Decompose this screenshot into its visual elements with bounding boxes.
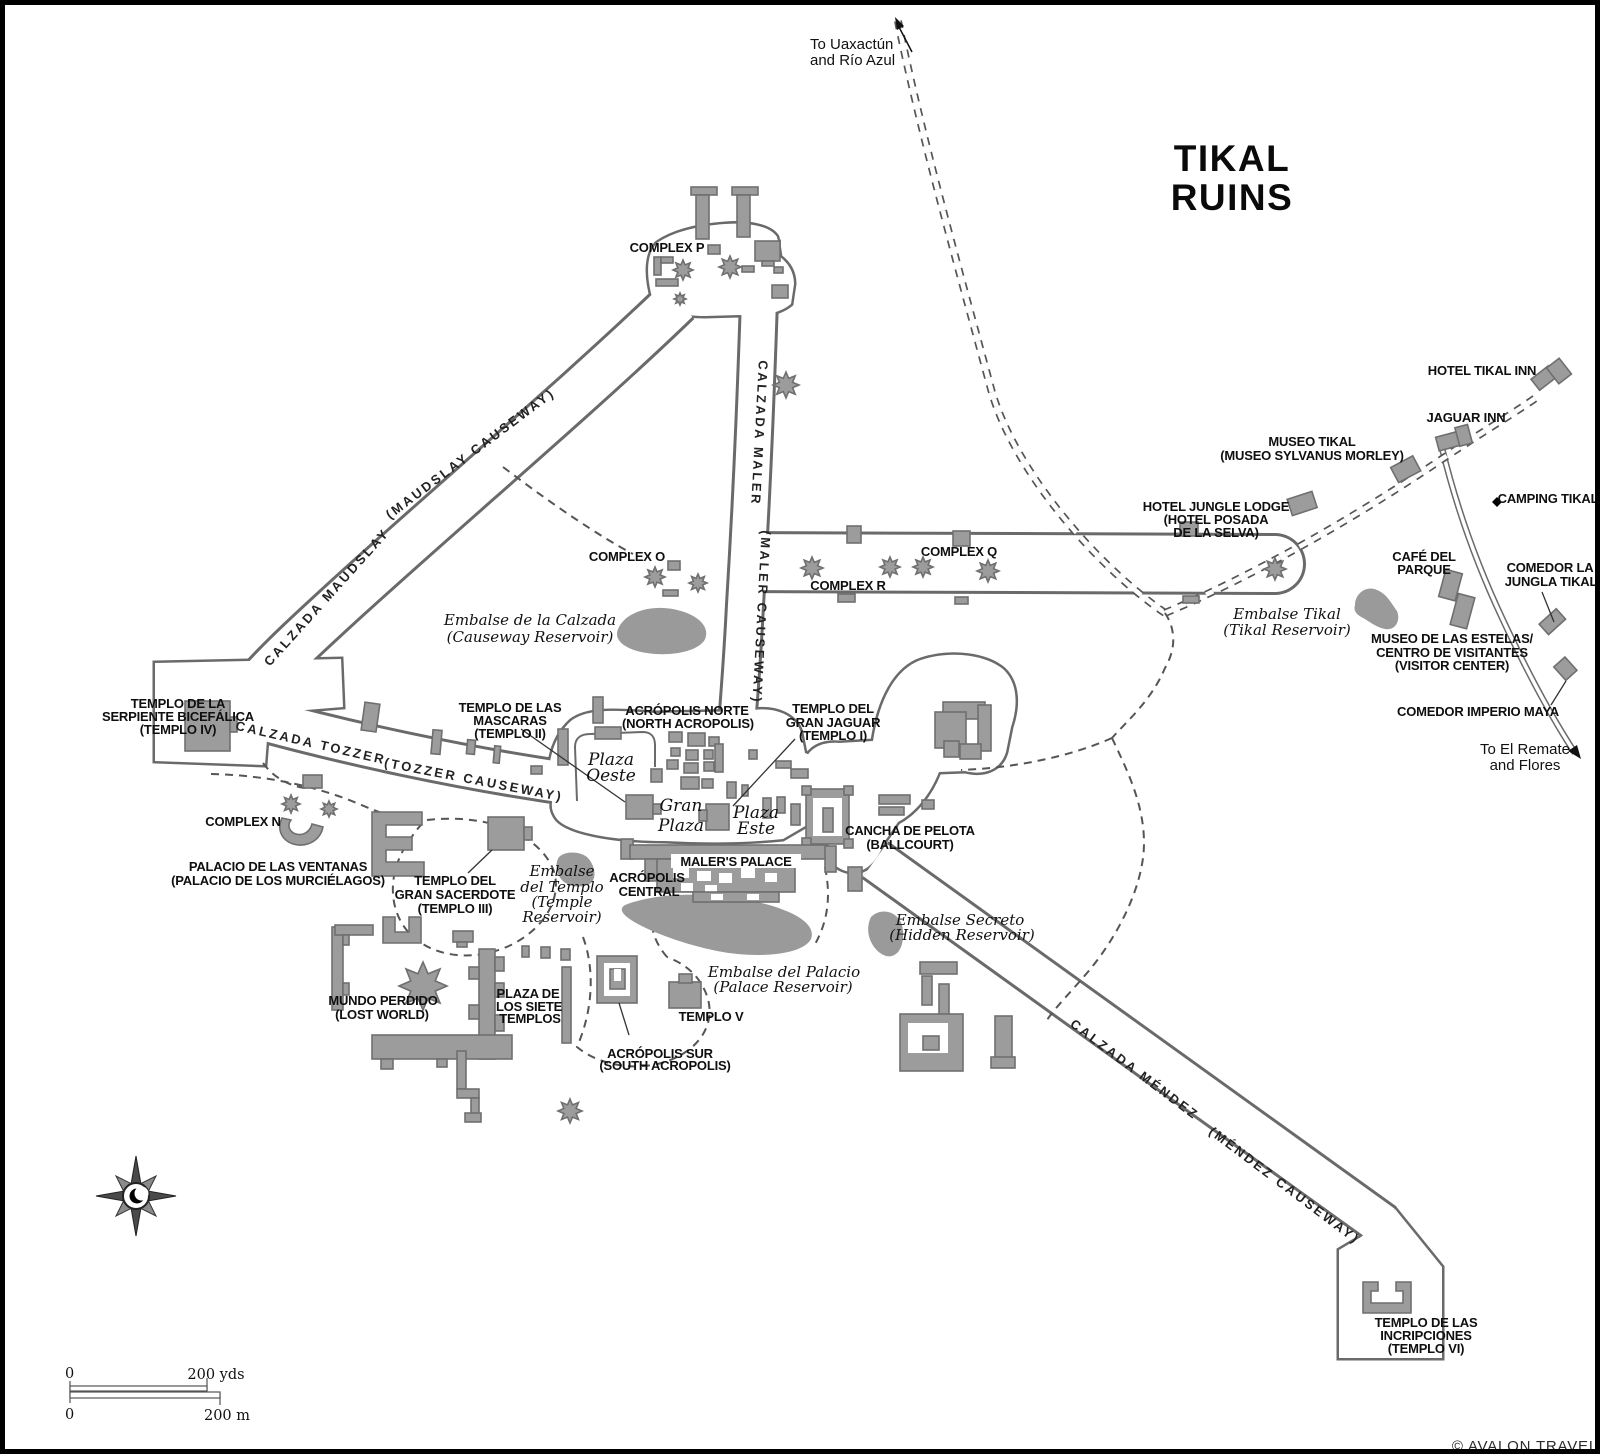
comedor-jungla-label: COMEDOR LA xyxy=(1507,560,1595,575)
complex-r-label: COMPLEX R xyxy=(810,578,886,593)
comedor-imperio-label: COMEDOR IMPERIO MAYA xyxy=(1397,704,1560,719)
museo-estelas-label: (VISITOR CENTER) xyxy=(1395,658,1509,673)
comedor-jungla-label: JUNGLA TIKAL xyxy=(1505,574,1598,589)
direction-el-remate: To El Remate xyxy=(1480,741,1570,758)
map-canvas: TIKAL RUINS To Uaxactún and Río Azul To … xyxy=(5,5,1600,1454)
plaza-oeste-label: Oeste xyxy=(586,766,636,786)
templo-4-label: (TEMPLO IV) xyxy=(140,722,217,737)
complex-q-label: COMPLEX Q xyxy=(921,544,997,559)
credit: © AVALON TRAVEL xyxy=(1452,1438,1598,1454)
cafe-parque-label: PARQUE xyxy=(1397,562,1451,577)
ballcourt-label: CANCHA DE PELOTA xyxy=(845,823,976,838)
south-acropolis-label: (SOUTH ACROPOLIS) xyxy=(599,1058,730,1073)
central-acropolis-label: ACRÓPOLIS xyxy=(609,870,685,885)
uaxactun-arrow xyxy=(895,17,912,52)
compass-rose xyxy=(96,1156,176,1236)
buildings-complex-n xyxy=(280,795,337,845)
camping-tikal-label: CAMPING TIKAL xyxy=(1498,491,1599,506)
map-title-line2: RUINS xyxy=(1171,177,1294,218)
templo-6-label: (TEMPLO VI) xyxy=(1388,1341,1465,1356)
north-acropolis-label: (NORTH ACROPOLIS) xyxy=(622,716,754,731)
tikal-ruins-map: TIKAL RUINS To Uaxactún and Río Azul To … xyxy=(0,0,1600,1454)
templo-1-label: (TEMPLO I) xyxy=(799,728,867,743)
museo-tikal-label: MUSEO TIKAL xyxy=(1268,434,1356,449)
museo-tikal-label: (MUSEO SYLVANUS MORLEY) xyxy=(1220,448,1403,463)
museo-estelas-label: MUSEO DE LAS ESTELAS/ xyxy=(1371,631,1534,646)
templo-3-label: TEMPLO DEL xyxy=(414,873,496,888)
causeway-cores xyxy=(155,224,1575,1358)
scale-m: 200 m xyxy=(204,1408,250,1424)
templo-5-label: TEMPLO V xyxy=(679,1009,744,1024)
gran-plaza-label: Gran xyxy=(660,796,703,816)
scale-yds: 200 yds xyxy=(187,1367,244,1383)
title-block: TIKAL RUINS xyxy=(1171,138,1294,218)
buildings-complex-o xyxy=(645,561,707,596)
south-acropolis-building xyxy=(597,956,637,1003)
tikal-reservoir-label: (Tikal Reservoir) xyxy=(1223,621,1351,639)
templo-1-label: TEMPLO DEL xyxy=(792,701,874,716)
templo-2-label: (TEMPLO II) xyxy=(474,726,545,741)
maler-palace-label: MALER'S PALACE xyxy=(680,854,792,869)
ballcourt-label: (BALLCOURT) xyxy=(866,837,953,852)
direction-el-remate: and Flores xyxy=(1490,757,1561,774)
palacio-ventanas-building xyxy=(372,812,424,876)
templo-3-label: GRAN SACERDOTE xyxy=(395,887,516,902)
scale-bar: 0 200 yds 0 200 m xyxy=(65,1366,250,1424)
templo-3-label: (TEMPLO III) xyxy=(418,901,493,916)
moon-icon xyxy=(135,1187,149,1201)
palacio-ventanas-label: (PALACIO DE LOS MURCIÉLAGOS) xyxy=(171,873,385,888)
scale-zero-m: 0 xyxy=(65,1407,74,1423)
hidden-reservoir-label: (Hidden Reservoir) xyxy=(889,926,1035,944)
hotel-tikal-inn-label: HOTEL TIKAL INN xyxy=(1428,363,1536,378)
complex-o-label: COMPLEX O xyxy=(589,549,665,564)
group-g-buildings xyxy=(900,962,1015,1071)
causeway-reservoir-label: Embalse de la Calzada xyxy=(443,611,616,629)
plaza-este-label: Este xyxy=(736,819,775,839)
scale-zero-yds: 0 xyxy=(65,1366,74,1382)
direction-uaxactun: To Uaxactún xyxy=(810,36,893,53)
mundo-perdido-label: (LOST WORLD) xyxy=(335,1007,429,1022)
central-acropolis-label: CENTRAL xyxy=(619,884,680,899)
jungle-lodge-label: DE LA SELVA) xyxy=(1173,525,1258,540)
complex-p-label: COMPLEX P xyxy=(630,240,705,255)
mundo-perdido-label: MUNDO PERDIDO xyxy=(328,993,437,1008)
causeway-reservoir-water xyxy=(617,608,706,654)
map-title-line1: TIKAL xyxy=(1174,138,1290,179)
palace-reservoir-water xyxy=(622,895,812,955)
palacio-ventanas-label: PALACIO DE LAS VENTANAS xyxy=(189,859,368,874)
complex-n-label: COMPLEX N xyxy=(205,814,280,829)
direction-uaxactun: and Río Azul xyxy=(810,52,895,69)
jaguar-inn-label: JAGUAR INN xyxy=(1427,410,1506,425)
tikal-reservoir-water xyxy=(1354,588,1398,629)
palace-reservoir-label: (Palace Reservoir) xyxy=(713,978,852,996)
temple-reservoir-label: Reservoir) xyxy=(521,908,601,926)
gran-plaza-label: Plaza xyxy=(657,816,704,836)
siete-templos-label: TEMPLOS xyxy=(499,1011,561,1026)
causeway-reservoir-label: (Causeway Reservoir) xyxy=(447,628,614,646)
templo-5-building xyxy=(669,974,701,1008)
